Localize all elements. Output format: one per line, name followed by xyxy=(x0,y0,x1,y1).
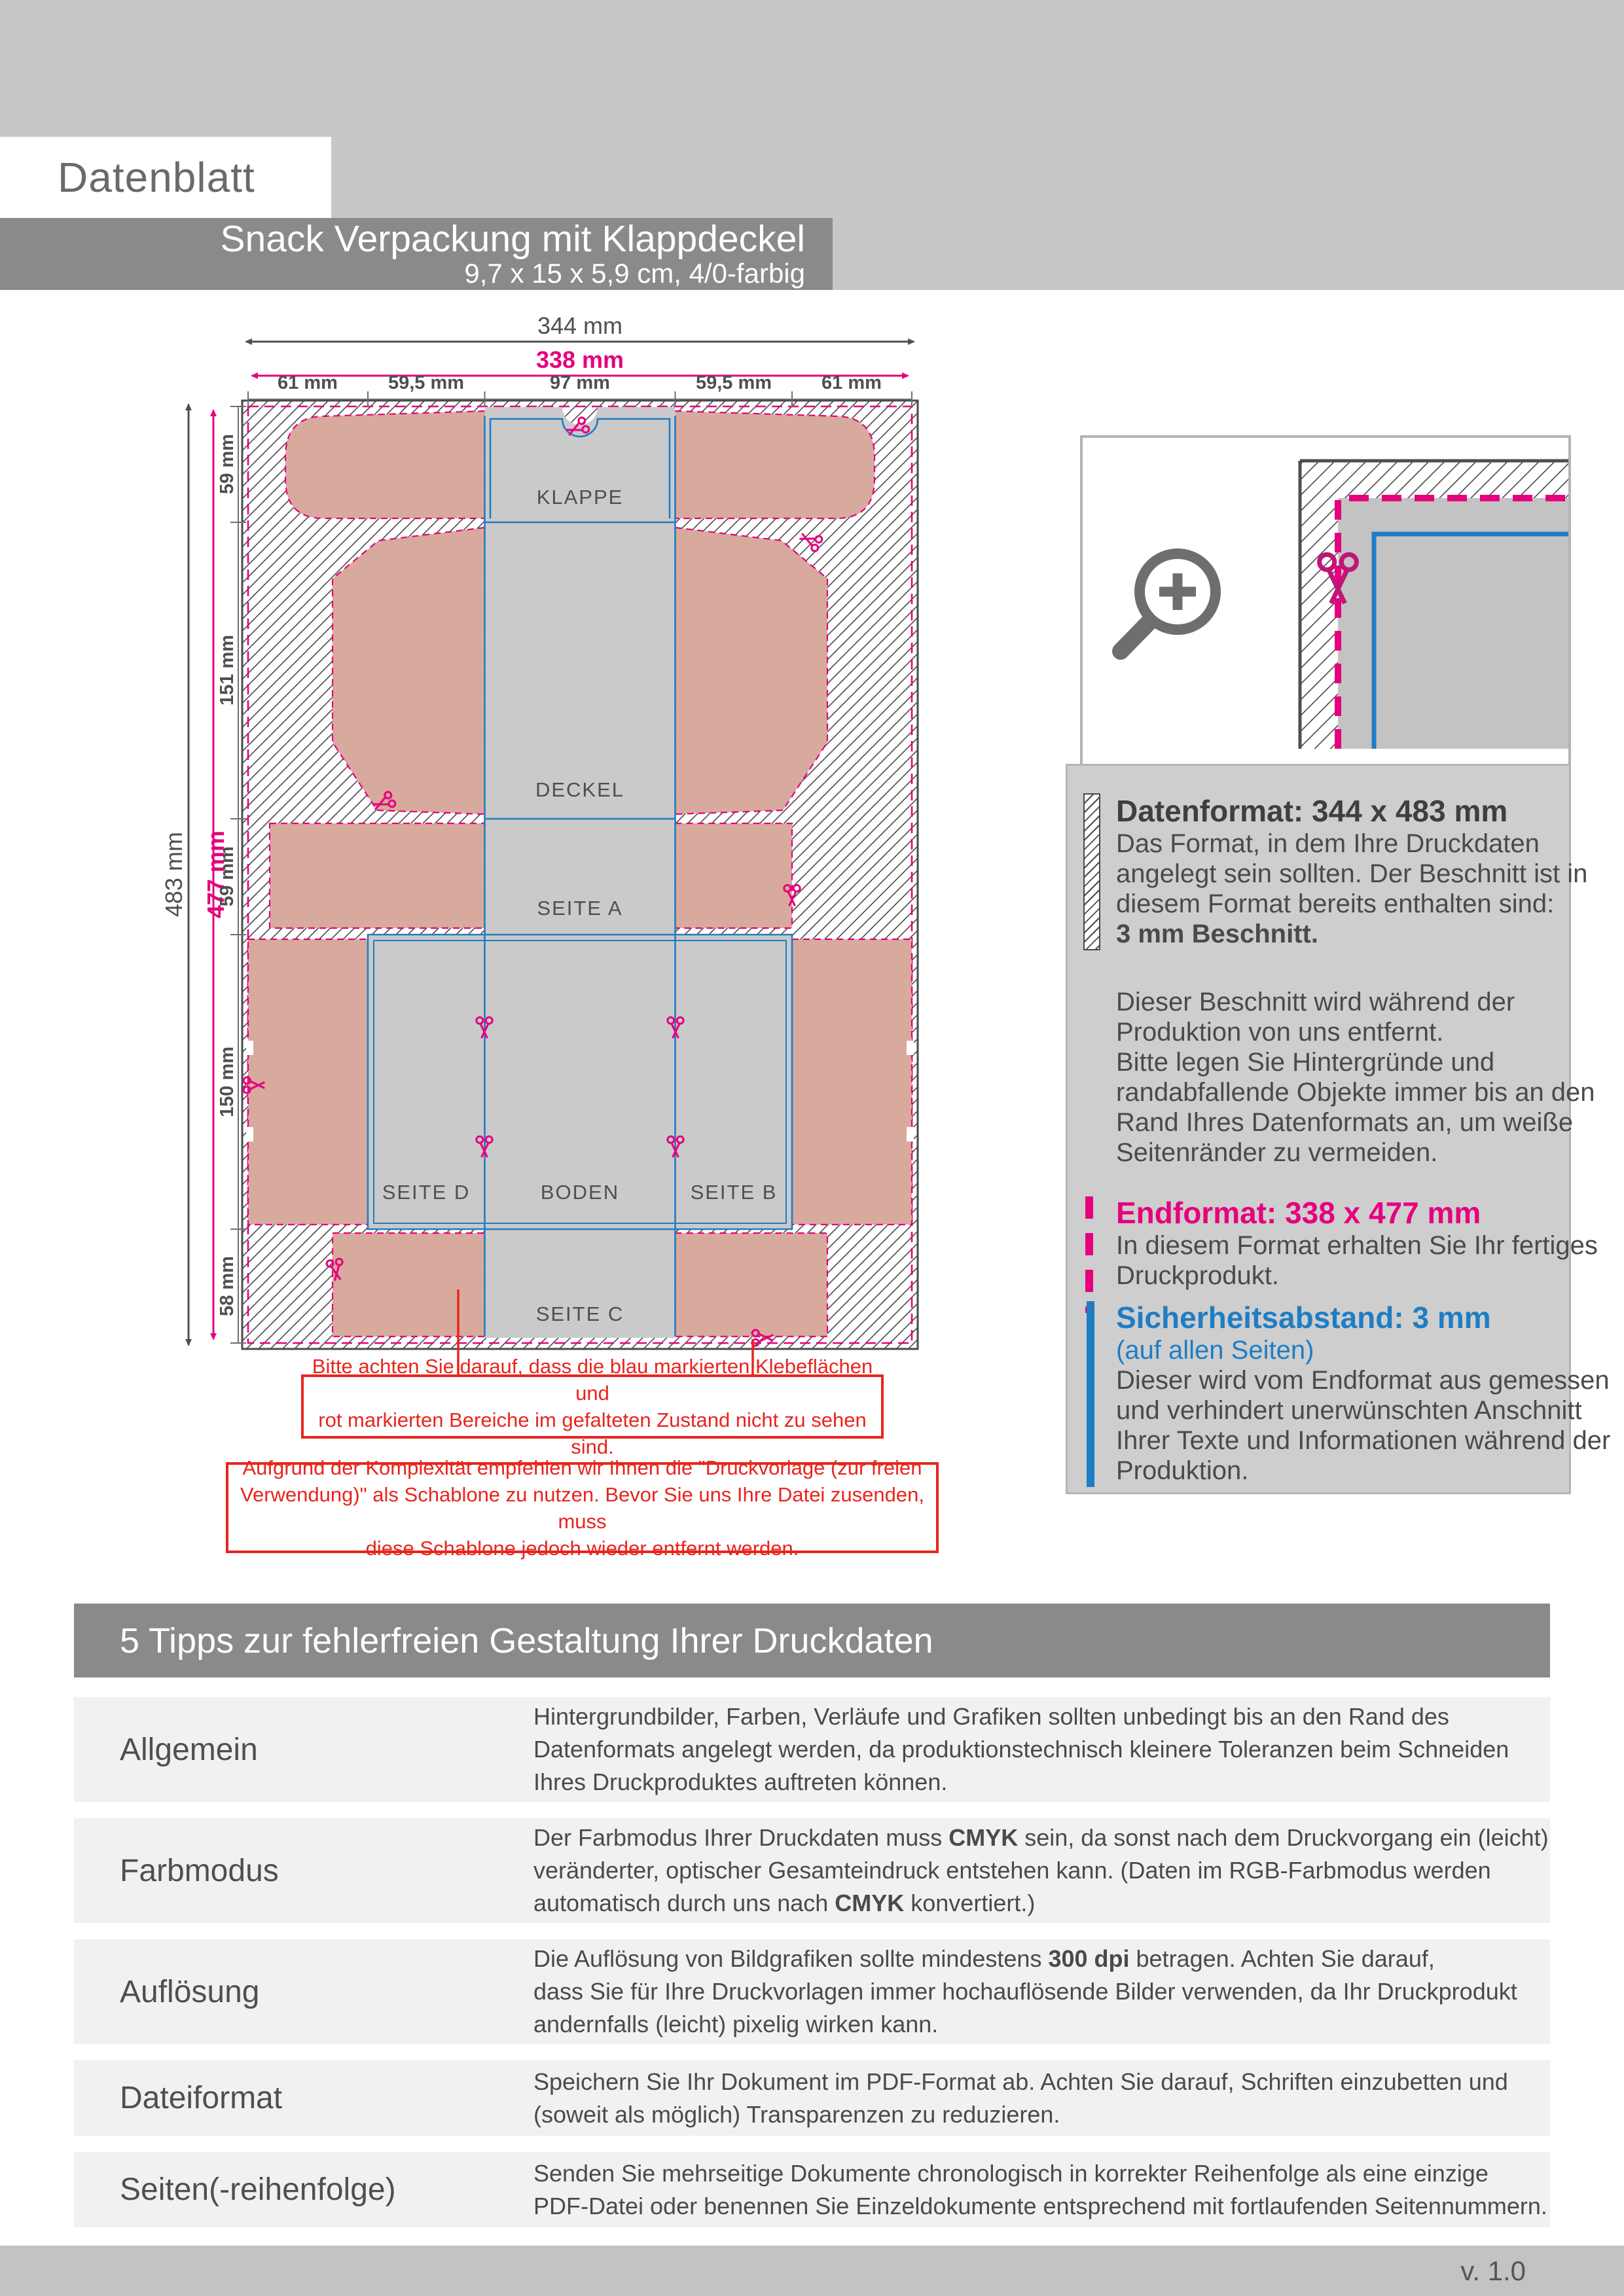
bleed-illustration xyxy=(1083,438,1570,771)
label-seite-c: SEITE C xyxy=(536,1302,624,1325)
flap-side-right xyxy=(792,939,912,1225)
bleed-note-section: Dieser Beschnitt wird während der Produk… xyxy=(1116,987,1595,1168)
corner-detail xyxy=(1300,461,1570,749)
dieline-diagram: KLAPPE DECKEL SEITE A SEITE D BODEN SEIT… xyxy=(151,308,956,1374)
datenblatt-label: Datenblatt xyxy=(58,153,255,202)
label-deckel: DECKEL xyxy=(535,778,624,801)
label-seite-b: SEITE B xyxy=(691,1181,778,1204)
datenformat-line: 3 mm Beschnitt. xyxy=(1116,919,1587,949)
bleed-note-line: Rand Ihres Datenformats an, um weiße xyxy=(1116,1107,1595,1138)
tip-row-seitenreihenfolge: Seiten(-reihenfolge) Senden Sie mehrseit… xyxy=(74,2152,1550,2227)
tip-line: Datenformats angelegt werden, da produkt… xyxy=(533,1733,1509,1766)
flap-deckel-left xyxy=(333,528,485,814)
dim-row-5: 58 mm xyxy=(217,1256,238,1316)
version-label: v. 1.0 xyxy=(1460,2255,1526,2287)
datenformat-line: diesem Format bereits enthalten sind: xyxy=(1116,889,1587,919)
flap-deckel-right xyxy=(676,528,828,814)
dim-col-1: 61 mm xyxy=(278,372,338,393)
flap-seitec-right xyxy=(676,1233,828,1336)
sicherheitsabstand-title: Sicherheitsabstand: 3 mm xyxy=(1116,1300,1610,1335)
tip-row-farbmodus: Farbmodus Der Farbmodus Ihrer Druckdaten… xyxy=(74,1818,1550,1923)
bleed-illustration-box xyxy=(1080,435,1571,772)
safety-bar-icon xyxy=(1087,1301,1094,1487)
flap-klappe-right xyxy=(676,411,875,518)
tip-label: Farbmodus xyxy=(120,1818,279,1923)
top-gray-band-right xyxy=(833,218,1624,290)
tips-header: 5 Tipps zur fehlerfreien Gestaltung Ihre… xyxy=(74,1604,1550,1677)
dim-trim-width: 338 mm xyxy=(536,346,624,373)
tip-line: (soweit als möglich) Transparenzen zu re… xyxy=(533,2098,1508,2131)
bleed-note-line: Bitte legen Sie Hintergründe und xyxy=(1116,1047,1595,1077)
dim-col-4: 59,5 mm xyxy=(696,372,772,393)
endformat-section: Endformat: 338 x 477 mm In diesem Format… xyxy=(1116,1195,1598,1291)
sicherheitsabstand-line: Dieser wird vom Endformat aus gemessen xyxy=(1116,1365,1610,1395)
label-boden: BODEN xyxy=(541,1181,619,1204)
dim-row-1: 59 mm xyxy=(217,434,238,494)
tips-title: 5 Tipps zur fehlerfreien Gestaltung Ihre… xyxy=(120,1621,933,1661)
tip-label: Seiten(-reihenfolge) xyxy=(120,2152,396,2227)
sicherheitsabstand-section: Sicherheitsabstand: 3 mm (auf allen Seit… xyxy=(1116,1300,1610,1486)
tip-label: Allgemein xyxy=(120,1697,258,1802)
tip-label: Dateiformat xyxy=(120,2060,282,2136)
dim-col-3: 97 mm xyxy=(550,372,610,393)
endformat-line: In diesem Format erhalten Sie Ihr fertig… xyxy=(1116,1230,1598,1261)
sicherheitsabstand-line: und verhindert unerwünschten Anschnitt xyxy=(1116,1395,1610,1426)
tip-line: PDF-Datei oder benennen Sie Einzeldokume… xyxy=(533,2190,1547,2223)
flap-klappe-left xyxy=(285,411,485,518)
sicherheitsabstand-line: Ihrer Texte und Informationen während de… xyxy=(1116,1426,1610,1456)
product-subtitle: 9,7 x 15 x 5,9 cm, 4/0-farbig xyxy=(464,259,805,289)
note-line: Verwendung)" als Schablone zu nutzen. Be… xyxy=(228,1481,936,1535)
dim-total-height: 483 mm xyxy=(160,832,187,917)
bleed-note-line: randabfallende Objekte immer bis an den xyxy=(1116,1077,1595,1107)
datenblatt-label-box: Datenblatt xyxy=(0,137,331,218)
product-banner: Snack Verpackung mit Klappdeckel 9,7 x 1… xyxy=(0,218,833,290)
bleed-note-line: Seitenränder zu vermeiden. xyxy=(1116,1138,1595,1168)
tip-line: Ihres Druckproduktes auftreten können. xyxy=(533,1766,1509,1799)
label-seite-a: SEITE A xyxy=(537,897,623,920)
note-box-fold-warning: Bitte achten Sie darauf, dass die blau m… xyxy=(301,1374,884,1439)
flap-seitec-left xyxy=(333,1233,485,1336)
tip-label: Auflösung xyxy=(120,1939,260,2044)
flap-side-left xyxy=(248,939,368,1225)
dimension-lines-top: 344 mm 338 mm 61 mm 59,5 mm 97 mm 59,5 m… xyxy=(246,312,914,407)
tip-line: dass Sie für Ihre Druckvorlagen immer ho… xyxy=(533,1975,1517,2008)
dim-total-width: 344 mm xyxy=(537,312,623,339)
product-title: Snack Verpackung mit Klappdeckel xyxy=(220,219,805,259)
tip-line: Speichern Sie Ihr Dokument im PDF-Format… xyxy=(533,2066,1508,2098)
footer-bar: v. 1.0 xyxy=(0,2246,1624,2296)
datenformat-line: angelegt sein sollten. Der Beschnitt ist… xyxy=(1116,859,1587,889)
tip-line: Senden Sie mehrseitige Dokumente chronol… xyxy=(533,2157,1547,2190)
datasheet-page: { "colors": { "magenta": "#e6007e", "blu… xyxy=(0,0,1624,2296)
datenformat-section: Datenformat: 344 x 483 mm Das Format, in… xyxy=(1116,793,1587,949)
endformat-title: Endformat: 338 x 477 mm xyxy=(1116,1195,1598,1230)
sicherheitsabstand-line: Produktion. xyxy=(1116,1456,1610,1486)
label-klappe: KLAPPE xyxy=(537,486,624,509)
tip-row-dateiformat: Dateiformat Speichern Sie Ihr Dokument i… xyxy=(74,2060,1550,2136)
dim-col-2: 59,5 mm xyxy=(388,372,464,393)
magnifier-icon xyxy=(1121,554,1216,651)
dim-row-3: 59 mm xyxy=(217,846,238,906)
bleed-note-line: Dieser Beschnitt wird während der xyxy=(1116,987,1595,1017)
note-line: diese Schablone jedoch wieder entfernt w… xyxy=(228,1535,936,1562)
dim-row-4: 150 mm xyxy=(217,1047,238,1117)
datenformat-title: Datenformat: 344 x 483 mm xyxy=(1116,793,1587,829)
dim-col-5: 61 mm xyxy=(821,372,882,393)
endformat-dash-icon xyxy=(1085,1196,1093,1313)
tip-row-aufloesung: Auflösung Die Auflösung von Bildgrafiken… xyxy=(74,1939,1550,2044)
note-line: Bitte achten Sie darauf, dass die blau m… xyxy=(304,1353,881,1407)
tip-line: automatisch durch uns nach CMYK konverti… xyxy=(533,1887,1549,1920)
tip-line: Der Farbmodus Ihrer Druckdaten muss CMYK… xyxy=(533,1821,1549,1854)
label-seite-d: SEITE D xyxy=(382,1181,471,1204)
sicherheitsabstand-subtitle: (auf allen Seiten) xyxy=(1116,1335,1610,1365)
tip-row-allgemein: Allgemein Hintergrundbilder, Farben, Ver… xyxy=(74,1697,1550,1802)
bleed-strip-icon xyxy=(1083,793,1100,950)
tip-line: veränderter, optischer Gesamteindruck en… xyxy=(533,1854,1549,1887)
endformat-line: Druckprodukt. xyxy=(1116,1261,1598,1291)
note-line: rot markierten Bereiche im gefalteten Zu… xyxy=(304,1407,881,1460)
flap-seitea-left xyxy=(270,823,485,928)
note-line: Aufgrund der Komplexität empfehlen wir I… xyxy=(228,1454,936,1481)
dim-row-2: 151 mm xyxy=(217,635,238,706)
flap-seitea-right xyxy=(676,823,793,928)
dimension-lines-left: 483 mm 477 mm 59 mm 151 mm 59 mm 150 mm … xyxy=(160,404,246,1345)
tip-line: Hintergrundbilder, Farben, Verläufe und … xyxy=(533,1700,1509,1733)
tip-line: andernfalls (leicht) pixelig wirken kann… xyxy=(533,2008,1517,2041)
datenformat-line: Das Format, in dem Ihre Druckdaten xyxy=(1116,829,1587,859)
bleed-note-line: Produktion von uns entfernt. xyxy=(1116,1017,1595,1047)
tip-line: Die Auflösung von Bildgrafiken sollte mi… xyxy=(533,1943,1517,1975)
note-box-template-warning: Aufgrund der Komplexität empfehlen wir I… xyxy=(226,1462,939,1553)
